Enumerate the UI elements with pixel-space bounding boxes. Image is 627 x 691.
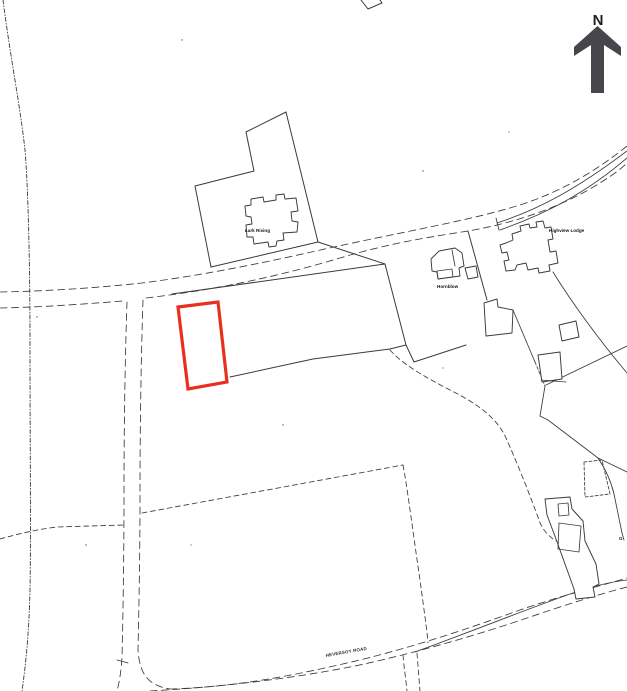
parcel-bottom-v-lines [406,345,466,362]
highview-se-parcel-line [553,272,627,373]
application-site-boundary [178,302,227,389]
bottom-road-solid-edge [415,580,627,652]
property-label-highview-lodge: Highview Lodge [549,228,585,233]
se-boundary-solid-upper [513,310,535,362]
field-boundary-east-dashed [142,465,403,513]
se-boundary-jogged-line [540,386,598,458]
field-boundary-south-dashed [403,465,428,643]
scan-speck [190,544,191,545]
south-track-east-edge [417,653,420,691]
property-label-lark-rising: Lark Rising [245,228,270,233]
scan-speck [508,131,509,132]
small-square-shed-outline [559,321,579,341]
main-road-lower-dashed-edge-west [0,301,123,308]
parish-boundary-dashdot-line [3,0,30,691]
lark-rising-house-outline [245,194,298,247]
south-outbuilding-outline [484,299,513,336]
track-west-dashed-edge [117,302,127,691]
top-edge-partial-building [361,0,382,9]
south-track-west-edge [403,655,407,691]
north-arrow: N [574,12,621,93]
bottom-road-lower-dashed-edge [150,587,627,691]
main-road-upper-dashed-edge [0,146,627,292]
dashed-structure-outline [584,460,610,497]
plan-drawing: N Lark Rising Hornblow Highview Lodge HE… [0,0,627,691]
north-arrow-icon [574,26,621,93]
hornblow-parcel-east-boundary [468,231,487,300]
field-boundary-west-dashed [0,525,124,539]
site-location-plan: N Lark Rising Hornblow Highview Lodge HE… [0,0,627,691]
property-label-hornblow: Hornblow [437,284,459,289]
bottom-road-upper-dashed-edge [170,578,627,689]
small-outbuilding-outline [538,352,562,382]
scan-speck [36,316,37,317]
main-road-solid-edge-upper [497,151,627,223]
track-junction-tick [117,660,128,663]
long-barn-outline [545,497,599,599]
track-east-dashed-edge [138,300,170,689]
se-boundary-south-branch [598,458,624,540]
scan-speck [422,170,423,171]
paddock-boundary-dashed-curve [390,350,556,541]
edge-label-fragment: G [619,536,623,541]
site-parcel-strip-outline [172,264,406,377]
scan-speck [85,544,86,545]
scan-speck [181,39,182,40]
road-frontage-line [318,242,385,264]
hornblow-annex-outline [465,266,478,279]
scan-speck [442,367,443,368]
road-name-label: HEVERSOY ROAD [325,646,367,658]
road-junction-tick [496,218,499,230]
scan-speck [282,424,283,425]
hornblow-house-outline [431,248,464,279]
